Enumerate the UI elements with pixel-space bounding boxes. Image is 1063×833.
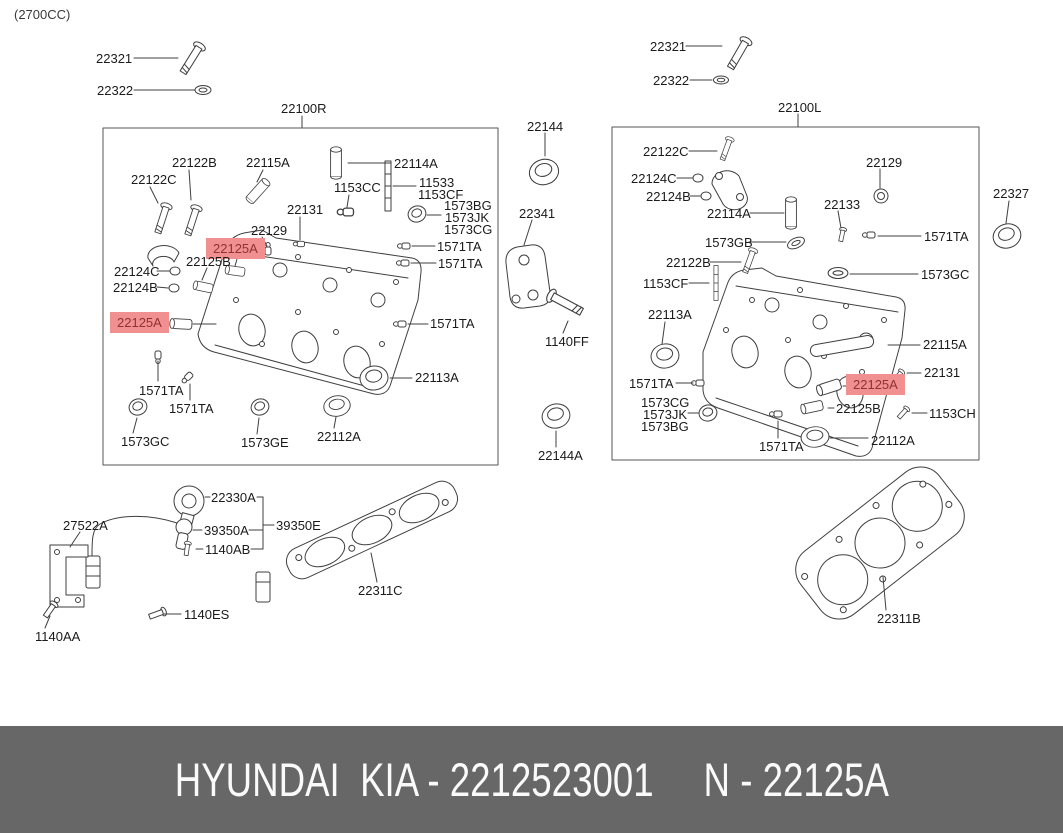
catalog-banner: HYUNDAI KIA - 2212523001 N - 22125A <box>0 726 1063 833</box>
diagram-line-art <box>0 0 1063 833</box>
middle-parts-drawings <box>506 156 585 431</box>
left-cylinder-head-drawing <box>198 230 421 394</box>
banner-text: HYUNDAI KIA - 2212523001 N - 22125A <box>174 756 888 803</box>
engine-size-label: (2700CC) <box>14 8 70 21</box>
gasket-22311b-drawing <box>786 457 974 628</box>
gasket-22311c-drawing <box>282 477 462 584</box>
banner-reference-number: N - 22125A <box>703 756 888 803</box>
sensor-harness-drawings <box>42 486 270 621</box>
right-cylinder-head-drawing <box>703 268 905 456</box>
parts-catalog-page: (2700CC) 223212232222100R22122B22115A221… <box>0 0 1063 833</box>
banner-brand-and-part-number: HYUNDAI KIA - 2212523001 <box>174 756 653 803</box>
